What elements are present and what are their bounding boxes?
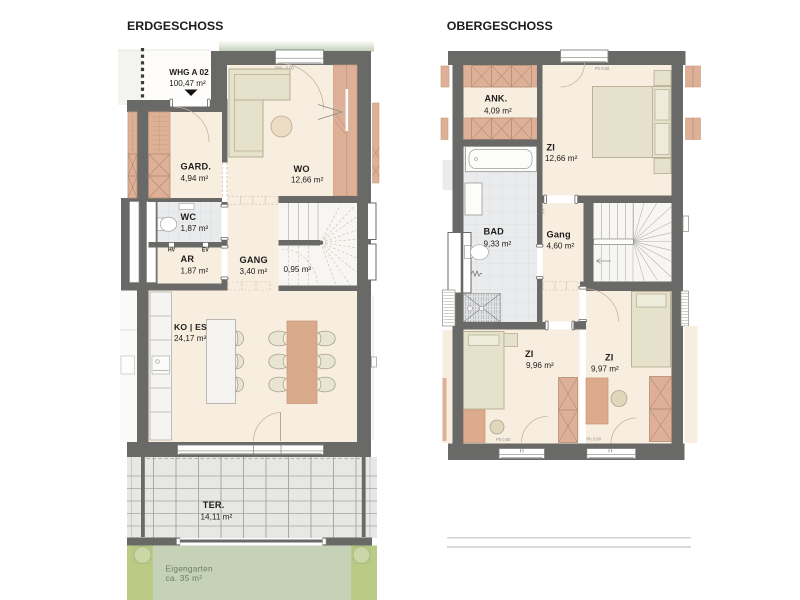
svg-text:GARD.: GARD. — [181, 162, 212, 172]
svg-text:ca. 35 m²: ca. 35 m² — [166, 573, 203, 583]
svg-text:4,09 m²: 4,09 m² — [484, 107, 512, 116]
svg-text:1,87 m²: 1,87 m² — [181, 224, 209, 233]
svg-text:BAD: BAD — [484, 227, 505, 237]
svg-text:WC: WC — [181, 212, 197, 222]
svg-text:9,97 m²: 9,97 m² — [591, 365, 619, 374]
svg-text:ZI: ZI — [525, 349, 534, 359]
svg-text:TER.: TER. — [203, 500, 225, 510]
svg-text:9,96 m²: 9,96 m² — [526, 361, 554, 370]
svg-text:4,60 m²: 4,60 m² — [547, 242, 575, 251]
svg-text:ZI: ZI — [547, 143, 556, 153]
svg-text:WHG A 02: WHG A 02 — [169, 67, 209, 77]
svg-text:OBERGESCHOSS: OBERGESCHOSS — [447, 19, 553, 33]
svg-text:HV: HV — [168, 248, 176, 254]
svg-text:ANK.: ANK. — [485, 94, 508, 104]
svg-text:Ph 0,80: Ph 0,80 — [587, 437, 602, 442]
svg-text:KO | ES: KO | ES — [174, 322, 207, 332]
svg-text:WO: WO — [294, 164, 310, 174]
svg-text:100,47 m²: 100,47 m² — [169, 79, 206, 88]
svg-text:1,87 m²: 1,87 m² — [181, 267, 209, 276]
svg-text:AR: AR — [181, 254, 195, 264]
svg-text:24,17 m²: 24,17 m² — [174, 334, 207, 343]
svg-text:Ph 0,80: Ph 0,80 — [595, 66, 610, 71]
svg-text:Ph 0,80: Ph 0,80 — [496, 437, 511, 442]
svg-text:3,40 m²: 3,40 m² — [240, 267, 268, 276]
svg-text:12,66 m²: 12,66 m² — [545, 154, 578, 163]
svg-text:ERDGESCHOSS: ERDGESCHOSS — [127, 19, 223, 33]
svg-text:0,95 m²: 0,95 m² — [284, 265, 312, 274]
svg-text:9,33 m²: 9,33 m² — [484, 240, 512, 249]
svg-text:ZI: ZI — [605, 353, 614, 363]
svg-text:Eigengarten: Eigengarten — [166, 564, 214, 574]
svg-text:Gang: Gang — [547, 230, 571, 240]
svg-text:4,94 m²: 4,94 m² — [181, 174, 209, 183]
svg-text:GANG: GANG — [240, 255, 268, 265]
svg-text:14,11 m²: 14,11 m² — [201, 513, 233, 522]
svg-text:EV: EV — [202, 248, 209, 254]
svg-text:12,66 m²: 12,66 m² — [291, 176, 324, 185]
svg-text:RV: RV — [541, 208, 546, 214]
